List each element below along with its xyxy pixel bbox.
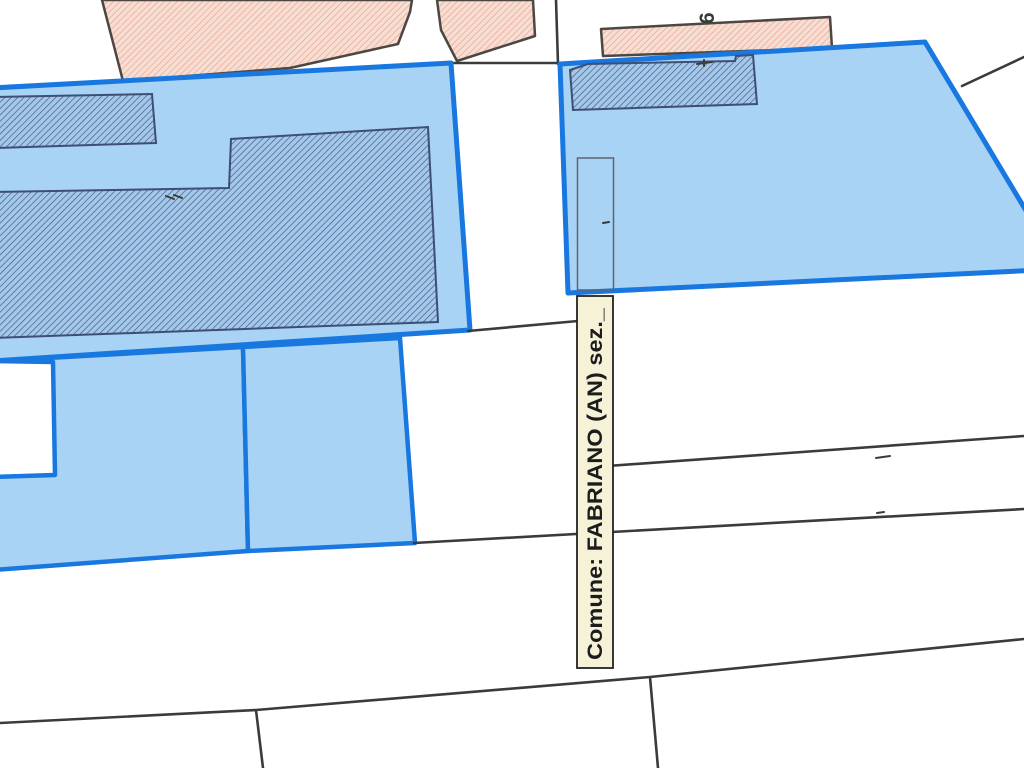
parcel-number: 6 bbox=[696, 12, 719, 24]
building-pink-corner[interactable] bbox=[437, 0, 535, 61]
map-label-text: Comune: FABRIANO (AN) sez._ bbox=[584, 308, 607, 660]
building-hatched-left-upper[interactable] bbox=[0, 94, 156, 148]
cadastral-map: Comune: FABRIANO (AN) sez._ 6 bbox=[0, 0, 1024, 768]
parcel-lower-left[interactable] bbox=[0, 347, 248, 570]
map-canvas[interactable]: Comune: FABRIANO (AN) sez._ 6 bbox=[0, 0, 1024, 768]
parcel-lower-right[interactable] bbox=[243, 338, 415, 551]
building-hatched-right[interactable] bbox=[570, 55, 757, 110]
map-label-box: Comune: FABRIANO (AN) sez._ bbox=[577, 296, 613, 668]
